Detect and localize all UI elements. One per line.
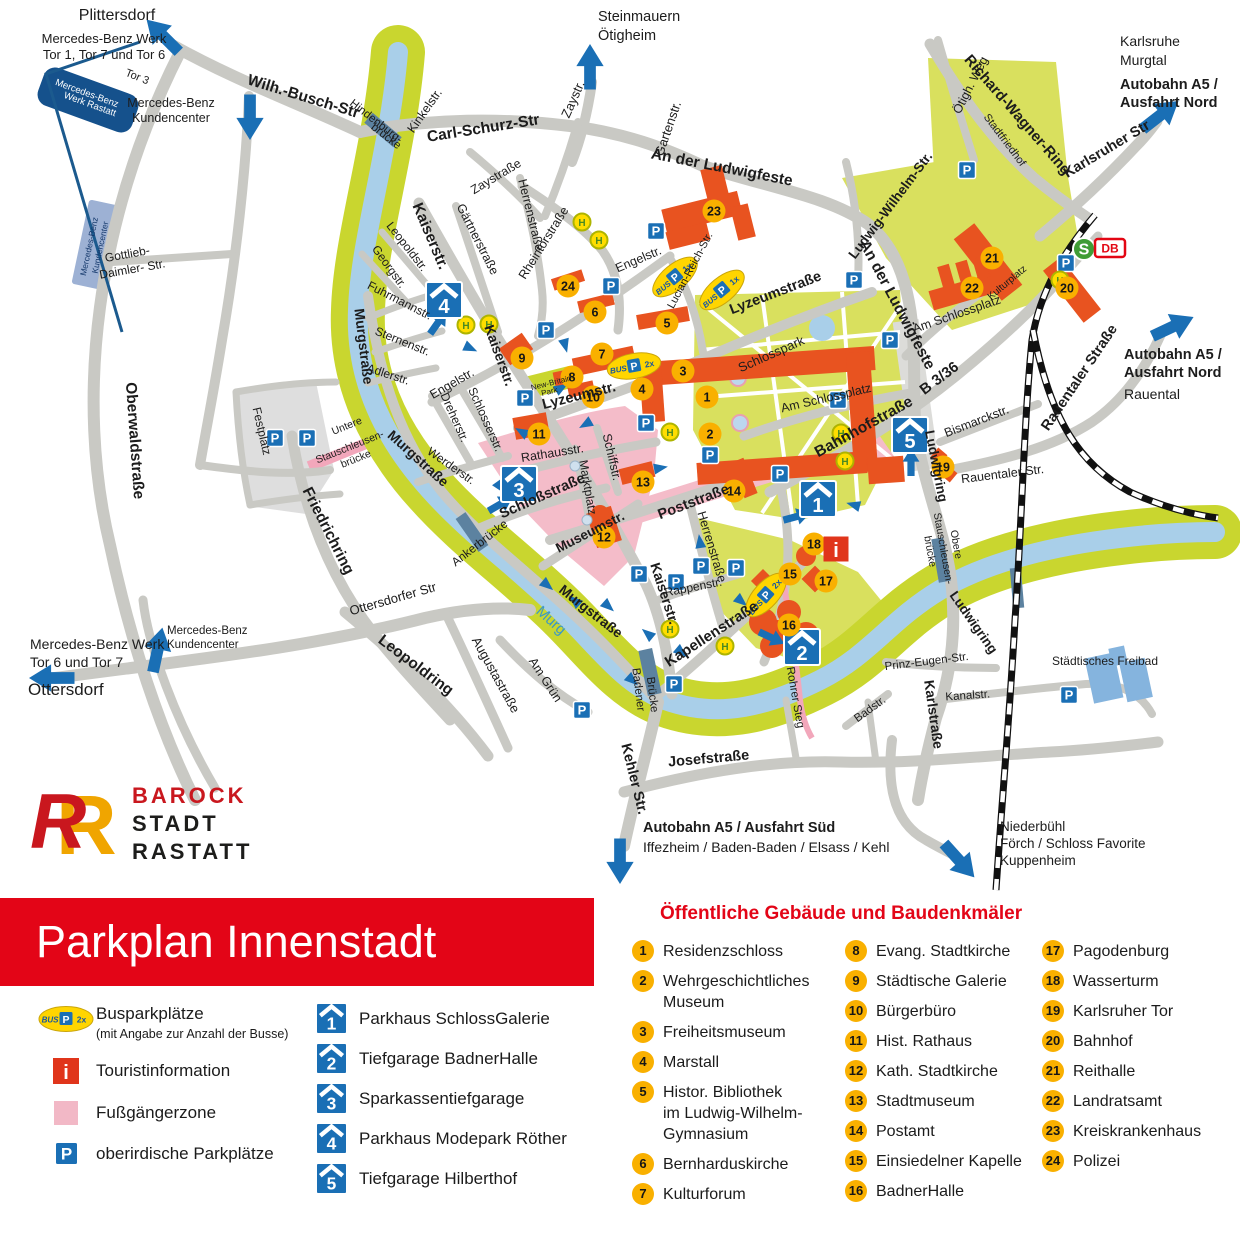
- parking-icon: P: [1058, 255, 1075, 272]
- svg-text:3: 3: [327, 1094, 337, 1114]
- svg-text:1: 1: [704, 390, 711, 404]
- building-number-badge: 14: [845, 1120, 867, 1142]
- parking-icon: P: [299, 430, 316, 447]
- svg-text:4: 4: [327, 1134, 337, 1154]
- street-label: Kuppenheim: [1000, 853, 1076, 868]
- map-marker: 22: [961, 277, 984, 300]
- svg-text:18: 18: [807, 537, 821, 551]
- building-list-item: 10Bürgerbüro: [845, 1000, 1040, 1022]
- street-label: Kundencenter: [132, 111, 210, 125]
- svg-text:6: 6: [592, 305, 599, 319]
- legend-item-touristinformation: i Touristinformation: [36, 1058, 316, 1084]
- parking-icon: P: [574, 702, 591, 719]
- map-marker: 21: [981, 247, 1004, 270]
- building-label: Evang. Stadtkirche: [876, 940, 1010, 962]
- parking-garage-icon: 1: [315, 1002, 348, 1035]
- page-title-banner: Parkplan Innenstadt: [0, 898, 594, 986]
- svg-text:i: i: [833, 540, 839, 562]
- garage-label: Parkhaus SchlossGalerie: [359, 1009, 550, 1029]
- svg-text:20: 20: [1060, 281, 1074, 295]
- map-marker: 7: [591, 343, 614, 366]
- svg-text:P: P: [652, 224, 661, 239]
- garage-label: Tiefgarage BadnerHalle: [359, 1049, 538, 1069]
- legend: BUSP2x Busparkplätze (mit Angabe zur Anz…: [36, 1004, 316, 1182]
- logo-text: BAROCK STADT RASTATT: [132, 782, 252, 866]
- building-number-badge: 13: [845, 1090, 867, 1112]
- legend-item-fussgaengerzone: Fußgängerzone: [36, 1101, 316, 1125]
- building-label: Städtische Galerie: [876, 970, 1007, 992]
- map-marker: 9: [511, 347, 534, 370]
- parking-icon: P: [648, 223, 665, 240]
- street-label: Oberwaldstraße: [122, 382, 147, 500]
- parking-icon: P: [638, 415, 655, 432]
- svg-text:P: P: [886, 333, 895, 348]
- building-list-item: 16BadnerHalle: [845, 1180, 1040, 1202]
- building-list-item: 21Reithalle: [1042, 1060, 1237, 1082]
- street-label: Ottersdorf: [28, 680, 104, 699]
- svg-text:24: 24: [561, 279, 575, 293]
- street-label: Mercedes-Benz Werk: [30, 636, 165, 652]
- building-label: Hist. Rathaus: [876, 1030, 972, 1052]
- db-icon: DB: [1095, 239, 1125, 257]
- map-marker: 1: [696, 386, 719, 409]
- svg-text:i: i: [63, 1062, 69, 1084]
- svg-text:2: 2: [707, 427, 714, 441]
- map-marker: 18: [803, 533, 826, 556]
- building: [730, 203, 756, 240]
- svg-text:H: H: [578, 218, 585, 229]
- building-label: Kath. Stadtkirche: [876, 1060, 998, 1082]
- building-number-badge: 4: [632, 1051, 654, 1073]
- svg-text:P: P: [670, 677, 679, 692]
- barock-stadt-rastatt-logo: R R BAROCK STADT RASTATT: [26, 776, 252, 872]
- building-label: Freiheitsmuseum: [663, 1021, 786, 1043]
- parking-garage-marker: 4: [316, 1123, 347, 1154]
- building-label: Residenzschloss: [663, 940, 783, 962]
- parking-icon: P: [55, 1142, 78, 1165]
- building-label: Kulturforum: [663, 1183, 746, 1205]
- buildings-column-1: 1Residenzschloss2Wehrgeschichtliches Mus…: [632, 940, 837, 1213]
- map-marker: 6: [584, 301, 607, 324]
- parking-icon: P: [702, 447, 719, 464]
- street-label: Tor 6 und Tor 7: [30, 654, 123, 670]
- svg-text:H: H: [595, 236, 602, 247]
- parking-icon: P: [631, 566, 648, 583]
- building-number-badge: 8: [845, 940, 867, 962]
- destination-arrow: [236, 95, 263, 141]
- svg-text:S: S: [1079, 242, 1090, 259]
- svg-text:1: 1: [327, 1014, 337, 1034]
- svg-text:P: P: [607, 279, 616, 294]
- building-number-badge: 1: [632, 940, 654, 962]
- garage-list-item: 2Tiefgarage BadnerHalle: [315, 1042, 567, 1075]
- building-number-badge: 15: [845, 1150, 867, 1172]
- building-list-item: 7Kulturforum: [632, 1183, 837, 1205]
- building-number-badge: 21: [1042, 1060, 1064, 1082]
- svg-text:P: P: [303, 431, 312, 446]
- building-list-item: 1Residenzschloss: [632, 940, 837, 962]
- parking-icon: P: [693, 558, 710, 575]
- svg-text:11: 11: [532, 427, 545, 441]
- bus-stop-icon: H: [662, 424, 679, 441]
- svg-text:H: H: [666, 625, 673, 636]
- tourist-info-icon: i: [53, 1058, 79, 1084]
- svg-text:P: P: [1065, 688, 1074, 703]
- parking-garage-marker: 3: [316, 1083, 347, 1114]
- building-label: BadnerHalle: [876, 1180, 964, 1202]
- building-label: Bernharduskirche: [663, 1153, 788, 1175]
- building-list-item: 23Kreiskrankenhaus: [1042, 1120, 1237, 1142]
- pedestrian-zone-swatch: [54, 1101, 78, 1125]
- building-number-badge: 23: [1042, 1120, 1064, 1142]
- building-label: Bahnhof: [1073, 1030, 1133, 1052]
- svg-text:P: P: [1062, 256, 1071, 271]
- map-marker: 13: [632, 471, 655, 494]
- street-label: Iffezheim / Baden-Baden / Elsass / Kehl: [643, 839, 889, 855]
- street-label: Rauental: [1124, 386, 1180, 402]
- svg-text:5: 5: [904, 431, 915, 453]
- garage-label: Parkhaus Modepark Röther: [359, 1129, 567, 1149]
- legend-label: Busparkplätze: [96, 1004, 288, 1024]
- street-label: Plittersdorf: [79, 7, 156, 24]
- building-label: Stadtmuseum: [876, 1090, 975, 1112]
- parking-icon: P: [538, 322, 555, 339]
- street-label: Mercedes-Benz Werk: [42, 31, 167, 46]
- building-list-item: 9Städtische Galerie: [845, 970, 1040, 992]
- parking-icon: P: [846, 272, 863, 289]
- building-list-item: 14Postamt: [845, 1120, 1040, 1142]
- svg-text:P: P: [850, 273, 859, 288]
- bus-stop-icon: H: [574, 214, 591, 231]
- legend-sublabel: (mit Angabe zur Anzahl der Busse): [96, 1027, 288, 1041]
- buildings-title: Öffentliche Gebäude und Baudenkmäler: [660, 903, 1022, 925]
- map-marker: 23: [703, 200, 726, 223]
- building-number-badge: 2: [632, 970, 654, 992]
- building-number-badge: 6: [632, 1153, 654, 1175]
- oneway-arrow: [558, 338, 572, 354]
- garage-label: Tiefgarage Hilberthof: [359, 1169, 517, 1189]
- garage-list-item: 5Tiefgarage Hilberthof: [315, 1162, 567, 1195]
- svg-text:P: P: [521, 391, 530, 406]
- building-list-item: 6Bernharduskirche: [632, 1153, 837, 1175]
- parking-icon: P: [517, 390, 534, 407]
- street-label: Ausfahrt Nord: [1120, 95, 1217, 111]
- parking-garage-marker: 1: [800, 481, 836, 517]
- street-label: Mercedes-Benz: [167, 625, 248, 637]
- parking-icon: P: [666, 676, 683, 693]
- parking-icon: P: [728, 560, 745, 577]
- svg-text:P: P: [642, 416, 651, 431]
- svg-text:5: 5: [664, 316, 671, 330]
- building-list-item: 4Marstall: [632, 1051, 837, 1073]
- parking-garage-icon: 4: [315, 1122, 348, 1155]
- building-number-badge: 11: [845, 1030, 867, 1052]
- building-list-item: 13Stadtmuseum: [845, 1090, 1040, 1112]
- parking-icon: P: [882, 332, 899, 349]
- sbahn-icon: S: [1073, 238, 1095, 260]
- building-number-badge: 20: [1042, 1030, 1064, 1052]
- map-marker: 3: [672, 360, 695, 383]
- parking-garage-marker: 1: [316, 1003, 347, 1034]
- street-label: Wilh.-Busch-Str: [245, 72, 361, 122]
- legend-label: Touristinformation: [96, 1061, 230, 1081]
- building-list-item: 12Kath. Stadtkirche: [845, 1060, 1040, 1082]
- building-label: Wasserturm: [1073, 970, 1159, 992]
- svg-text:H: H: [721, 642, 728, 653]
- building-list-item: 15Einsiedelner Kapelle: [845, 1150, 1040, 1172]
- street-label: Kanalstr.: [945, 688, 990, 703]
- parking-icon: P: [603, 278, 620, 295]
- building-list-item: 20Bahnhof: [1042, 1030, 1237, 1052]
- rastatt-logo-mark: R R: [26, 776, 118, 872]
- parking-garage-icon: 3: [315, 1082, 348, 1115]
- building-label: Polizei: [1073, 1150, 1120, 1172]
- building-list-item: 8Evang. Stadtkirche: [845, 940, 1040, 962]
- street-label: Am Grün: [526, 655, 565, 705]
- tourist-info-icon: i: [824, 537, 849, 563]
- city-map: BUSP1xBUSP1xBUSP2xBUSP2xPPPPPPPPPPPPPPPP…: [0, 0, 1240, 896]
- svg-text:21: 21: [985, 251, 999, 265]
- garage-list-item: 3Sparkassentiefgarage: [315, 1082, 567, 1115]
- building-list-item: 22Landratsamt: [1042, 1090, 1237, 1112]
- bus-parking-icon: BUSP2x: [36, 1004, 96, 1034]
- building-label: Karlsruher Tor: [1073, 1000, 1173, 1022]
- building-label: Bürgerbüro: [876, 1000, 956, 1022]
- svg-text:4: 4: [438, 296, 450, 318]
- parking-icon: P: [959, 162, 976, 179]
- street-label: Niederbühl: [1000, 819, 1065, 834]
- svg-text:P: P: [542, 323, 551, 338]
- oneway-arrow: [653, 461, 669, 474]
- street-label: Ausfahrt Nord: [1124, 365, 1221, 381]
- svg-text:16: 16: [782, 618, 796, 632]
- street-label: Mercedes-Benz: [127, 96, 215, 110]
- map-marker: 4: [631, 378, 654, 401]
- building-number-badge: 3: [632, 1021, 654, 1043]
- svg-text:15: 15: [783, 567, 797, 581]
- destination-arrow: [934, 834, 985, 886]
- logo-line2: STADT: [132, 810, 252, 838]
- building-number-badge: 12: [845, 1060, 867, 1082]
- road: [545, 122, 578, 216]
- bus-parking-icon: BUSP2x: [39, 1007, 93, 1032]
- map-marker: 16: [778, 614, 801, 637]
- oneway-arrow: [462, 340, 479, 356]
- svg-text:DB: DB: [1101, 242, 1119, 256]
- street-label: Tor 1, Tor 7 und Tor 6: [43, 47, 165, 62]
- building-list-item: 5Histor. Bibliothek im Ludwig-Wilhelm- G…: [632, 1081, 837, 1145]
- building-number-badge: 9: [845, 970, 867, 992]
- bus-stop-icon: H: [717, 638, 734, 655]
- map-marker: 2: [699, 423, 722, 446]
- bus-stop-icon: H: [458, 317, 475, 334]
- building-number-badge: 10: [845, 1000, 867, 1022]
- map-marker: 24: [557, 275, 580, 298]
- svg-text:P: P: [635, 567, 644, 582]
- building-number-badge: 19: [1042, 1000, 1064, 1022]
- garage-label: Sparkassentiefgarage: [359, 1089, 524, 1109]
- map-marker: 20: [1056, 277, 1079, 300]
- building-label: Reithalle: [1073, 1060, 1135, 1082]
- building: [867, 456, 905, 484]
- street-label: Förch / Schloss Favorite: [1000, 836, 1146, 851]
- legend-label: Fußgängerzone: [96, 1103, 216, 1123]
- street-label: Autobahn A5 / Ausfahrt Süd: [643, 820, 835, 836]
- parking-garage-marker: 5: [316, 1163, 347, 1194]
- svg-text:5: 5: [327, 1174, 337, 1194]
- building-number-badge: 5: [632, 1081, 654, 1103]
- svg-text:2x: 2x: [644, 358, 655, 370]
- svg-text:H: H: [841, 457, 848, 468]
- svg-text:7: 7: [599, 347, 606, 361]
- garage-list-item: 1Parkhaus SchlossGalerie: [315, 1002, 567, 1035]
- street-label: Rauentaler Straße: [1038, 322, 1121, 434]
- parking-garage-marker: 5: [892, 417, 928, 453]
- page-title: Parkplan Innenstadt: [36, 916, 436, 967]
- svg-text:1: 1: [812, 495, 823, 517]
- svg-text:P: P: [963, 163, 972, 178]
- street-label: Karlsruhe: [1120, 33, 1180, 49]
- svg-text:9: 9: [519, 351, 526, 365]
- building-list-item: 3Freiheitsmuseum: [632, 1021, 837, 1043]
- parking-garage-icon: 5: [315, 1162, 348, 1195]
- building-number-badge: 22: [1042, 1090, 1064, 1112]
- svg-text:P: P: [60, 1145, 71, 1164]
- svg-text:2: 2: [796, 643, 807, 665]
- building-number-badge: 18: [1042, 970, 1064, 992]
- parking-icon: P: [1061, 687, 1078, 704]
- svg-text:P: P: [578, 703, 587, 718]
- street-label: Kundencenter: [167, 639, 239, 651]
- street-label: Städtisches Freibad: [1052, 654, 1158, 668]
- svg-text:13: 13: [636, 475, 650, 489]
- building-label: Histor. Bibliothek im Ludwig-Wilhelm- Gy…: [663, 1081, 803, 1145]
- svg-text:H: H: [666, 428, 673, 439]
- building-label: Marstall: [663, 1051, 719, 1073]
- building-number-badge: 24: [1042, 1150, 1064, 1172]
- legend-item-busparkplaetze: BUSP2x Busparkplätze (mit Angabe zur Anz…: [36, 1004, 316, 1041]
- building-label: Kreiskrankenhaus: [1073, 1120, 1201, 1142]
- svg-text:P: P: [697, 559, 706, 574]
- buildings-column-2: 8Evang. Stadtkirche9Städtische Galerie10…: [845, 940, 1040, 1210]
- map-marker: 17: [815, 570, 838, 593]
- building-list-item: 2Wehrgeschichtliches Museum: [632, 970, 837, 1013]
- svg-text:3: 3: [680, 364, 687, 378]
- street-label: Murgtal: [1120, 52, 1167, 68]
- svg-text:P: P: [776, 467, 785, 482]
- building-list-item: 18Wasserturm: [1042, 970, 1237, 992]
- building-label: Landratsamt: [1073, 1090, 1162, 1112]
- parking-icon: P: [772, 466, 789, 483]
- map-marker: 5: [656, 312, 679, 335]
- building-number-badge: 16: [845, 1180, 867, 1202]
- svg-text:P: P: [732, 561, 741, 576]
- parking-garage-marker: 2: [316, 1043, 347, 1074]
- street-label: Tor 3: [124, 67, 151, 87]
- logo-line1: BAROCK: [132, 782, 252, 810]
- svg-text:2x: 2x: [77, 1015, 87, 1025]
- building-number-badge: 17: [1042, 940, 1064, 962]
- map-marker: 11: [528, 423, 551, 446]
- legend-label: oberirdische Parkplätze: [96, 1144, 274, 1164]
- building-label: Pagodenburg: [1073, 940, 1169, 962]
- bus-stop-icon: H: [837, 453, 854, 470]
- building-list-item: 11Hist. Rathaus: [845, 1030, 1040, 1052]
- building-label: Wehrgeschichtliches Museum: [663, 970, 809, 1013]
- buildings-column-3: 17Pagodenburg18Wasserturm19Karlsruher To…: [1042, 940, 1237, 1180]
- building-list-item: 17Pagodenburg: [1042, 940, 1237, 962]
- logo-r-red: R: [30, 777, 86, 865]
- svg-text:H: H: [462, 321, 469, 332]
- logo-line3: RASTATT: [132, 838, 252, 866]
- road: [94, 52, 195, 800]
- svg-text:P: P: [706, 448, 715, 463]
- street-label: Autobahn A5 /: [1120, 77, 1218, 93]
- building-number-badge: 7: [632, 1183, 654, 1205]
- building-label: Einsiedelner Kapelle: [876, 1150, 1022, 1172]
- svg-text:23: 23: [707, 204, 721, 218]
- parking-garage-icon: 2: [315, 1042, 348, 1075]
- map-marker: 15: [779, 563, 802, 586]
- svg-text:2: 2: [327, 1054, 337, 1074]
- street-label: Autobahn A5 /: [1124, 347, 1222, 363]
- parking-garage-list: 1Parkhaus SchlossGalerie2Tiefgarage Badn…: [315, 1002, 567, 1202]
- parkplan-poster: BUSP1xBUSP1xBUSP2xBUSP2xPPPPPPPPPPPPPPPP…: [0, 0, 1240, 1240]
- bus-stop-icon: H: [591, 232, 608, 249]
- legend-item-parkplaetze: P oberirdische Parkplätze: [36, 1142, 316, 1165]
- svg-text:P: P: [62, 1014, 69, 1026]
- garage-list-item: 4Parkhaus Modepark Röther: [315, 1122, 567, 1155]
- oneway-arrow: [638, 625, 656, 642]
- svg-text:17: 17: [819, 574, 833, 588]
- svg-text:22: 22: [965, 281, 979, 295]
- svg-text:BUS: BUS: [42, 1016, 60, 1025]
- street-label: Ötigheim: [598, 26, 656, 44]
- building-list-item: 19Karlsruher Tor: [1042, 1000, 1237, 1022]
- building-label: Postamt: [876, 1120, 935, 1142]
- street-label: Steinmauern: [598, 9, 680, 25]
- svg-text:4: 4: [639, 382, 646, 396]
- building-list-item: 24Polizei: [1042, 1150, 1237, 1172]
